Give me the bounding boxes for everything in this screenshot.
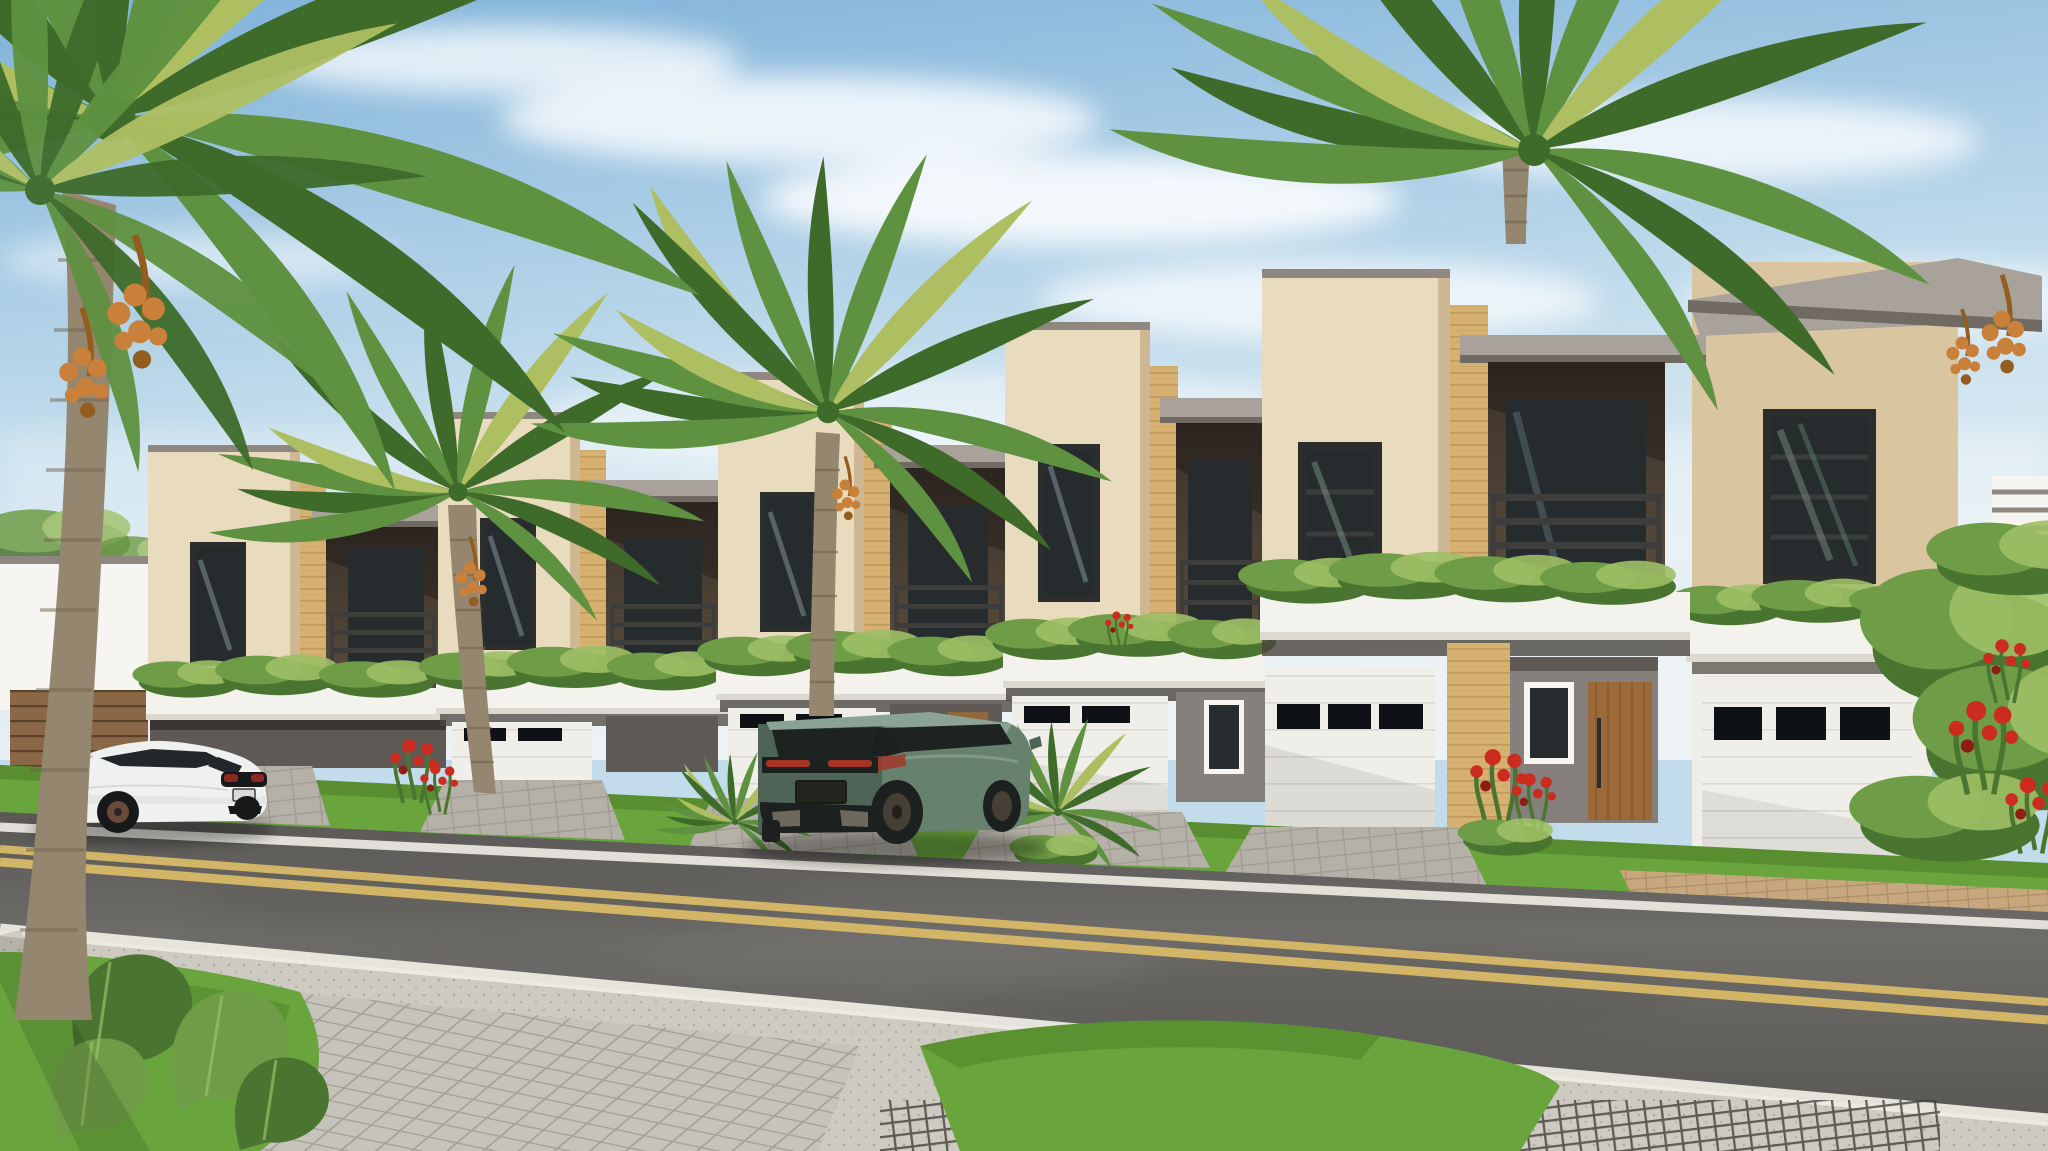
unit1-window	[190, 542, 246, 666]
unit6-window	[1763, 409, 1876, 584]
suv-taillight-right	[828, 760, 872, 767]
townhouse-unit-5	[1238, 269, 1706, 843]
rendering-canvas	[0, 0, 2048, 1151]
unit2-entry-recess	[606, 716, 718, 772]
unit4-entry-window	[1204, 700, 1244, 774]
suv-rear-glass	[772, 727, 876, 759]
townhome-street-rendering	[0, 0, 2048, 1151]
unit4-balcony-glass	[1188, 460, 1252, 642]
sedan-taillight-right	[251, 774, 264, 782]
unit5-entry-window	[1524, 682, 1574, 764]
green-suv	[743, 712, 1047, 865]
unit3-window	[760, 492, 816, 632]
suv-license-plate	[796, 781, 846, 803]
sedan-taillight-left	[224, 774, 238, 782]
unit5-garage-door	[1265, 668, 1435, 827]
unit5-entry-door	[1588, 682, 1652, 820]
suv-taillight-left	[766, 760, 810, 767]
door-handle	[1597, 718, 1601, 788]
